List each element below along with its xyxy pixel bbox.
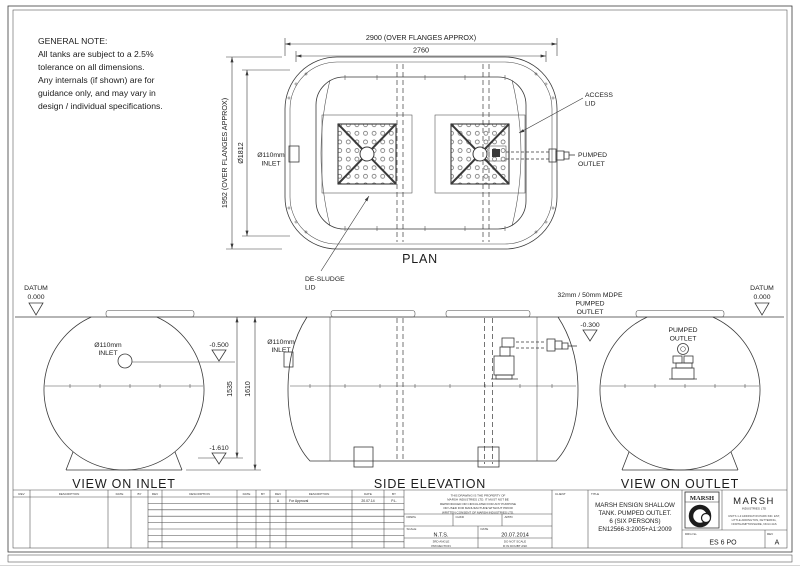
desludge-lid-label: DE-SLUDGE [305,276,345,283]
general-note-line: All tanks are subject to a 2.5% [38,49,154,59]
side-desludge-pipe [397,318,403,460]
inlet-view-caption: VIEW ON INLET [72,477,175,491]
level-triangle [212,350,226,361]
side-lid-right [446,311,530,318]
date-value: 20.07.2014 [501,533,529,539]
general-note-line: Any internals (if shown) are for [38,75,155,85]
plan-inlet-stub [289,146,299,162]
access-lid-leader [519,98,583,133]
access-lid-label: LID [585,101,596,108]
inlet-pipe [118,354,132,368]
svg-text:2900 (OVER FLANGES APPROX): 2900 (OVER FLANGES APPROX) [366,33,476,42]
mdpe-outlet-label: OUTLET [577,309,604,316]
rev-header: REV [152,492,158,496]
svg-text:1952 (OVER FLANGES APPROX): 1952 (OVER FLANGES APPROX) [220,98,229,208]
date-header: DATE [243,492,251,496]
rev-value: A [775,540,780,547]
plan-inlet-label: Ø110mm [257,152,285,159]
company-address: NORTHAMPTONSHIRE, NN14 4AS [731,522,776,526]
level-triangle [212,453,226,464]
date-header: DATE [116,492,124,496]
title-block: REV DESCRIPTION DATE BY REV DESCRIPTION … [13,490,787,548]
plan-pumped-outlet-label: PUMPED [578,152,607,159]
outlet-view-caption: VIEW ON OUTLET [621,477,739,491]
drwg-cell-label: DRWG [407,515,417,519]
svg-text:2760: 2760 [413,46,429,55]
plan-flange-bolts [288,73,554,233]
logo-wordmark: MARSH [690,495,714,502]
date-header: DATE [364,492,372,496]
rev-label: REV [767,532,773,536]
outlet-view-pump [669,356,697,379]
mdpe-outlet-label: 32mm / 50mm MDPE [558,292,623,299]
side-end-seams [330,317,537,461]
side-elevation: Ø110mm INLET 32mm / 50mm MDPE PUMPED OUT… [267,292,623,491]
dim-1610: 1610 [245,381,252,397]
desludge-lid-leader [321,196,369,271]
base-level: -1.610 [209,445,228,452]
scale-value: N.T.S. [434,533,449,539]
scale-label: SCALE [407,527,417,531]
plan-tank-outer-flange [285,57,557,249]
revision-by: P.L. [391,499,397,503]
side-pump-riser [485,318,493,464]
datum-triangle [29,303,43,315]
drawing-title: MARSH ENSIGN SHALLOW TANK. PUMPED OUTLET… [595,502,675,533]
by-header: BY [137,492,141,496]
plan-view: 2900 (OVER FLANGES APPROX) 2760 1952 (OV… [220,33,613,292]
revision-row: A For Approval 20.07.14 P.L. [277,499,397,503]
datum-left: DATUM 0.000 [24,285,48,315]
svg-text:DATUM: DATUM [24,285,48,292]
side-sump-left [354,447,373,467]
appd-cell-label: APPD [505,515,514,519]
engineering-drawing: GENERAL NOTE: All tanks are subject to a… [0,0,800,565]
company-name: MARSH [733,496,775,507]
side-lid-left [331,311,415,318]
svg-text:Ø1812: Ø1812 [236,142,245,164]
access-lid-label: ACCESS [585,92,613,99]
level-triangle [583,330,597,341]
date-label: DATE [481,527,489,531]
datum-right: DATUM 0.000 [750,285,774,315]
client-label: CLIENT [555,492,566,496]
marsh-logo: MARSH [685,492,719,528]
title-label: TITLE [591,492,599,496]
description-header: DESCRIPTION [59,492,80,496]
description-header: DESCRIPTION [309,492,330,496]
chkd-cell-label: CHKD [456,515,465,519]
drawing-sheet: GENERAL NOTE: All tanks are subject to a… [0,0,800,565]
revision-date: 20.07.14 [361,499,374,503]
svg-text:0.000: 0.000 [753,294,770,301]
side-sump-right [478,447,499,467]
drg-no-value: ES 6 PO [709,540,737,547]
plan-pumped-outlet-label: OUTLET [578,161,605,168]
general-note-line: tolerance on all dimensions. [38,62,145,72]
disclaimer: THIS DRAWING IS THE PROPERTY OF MARSH IN… [440,494,516,515]
datum-triangle [755,303,769,315]
side-elevation-caption: SIDE ELEVATION [374,477,486,491]
svg-text:TANK. PUMPED OUTLET.: TANK. PUMPED OUTLET. [598,510,671,517]
general-note-line: guidance only, and may vary in [38,88,156,98]
inlet-view-tank [44,317,204,470]
inlet-invert-level: -0.500 [209,342,228,349]
svg-text:MARSH ENSIGN SHALLOW: MARSH ENSIGN SHALLOW [595,502,675,509]
projection-note: PROJECTION [431,544,450,548]
svg-text:DATUM: DATUM [750,285,774,292]
view-on-inlet: Ø110mm INLET -0.500 1535 1610 -1.610 VIE… [44,311,261,492]
dim-1535: 1535 [227,381,234,397]
outlet-view-base [622,452,738,470]
inlet-view-inlet-label: INLET [98,350,117,357]
side-tank-outline [288,317,578,461]
inlet-view-base [66,452,182,470]
drg-no-label: DRG No. [685,532,697,536]
company-block: MARSH INDUSTRIES LTD UNITS 1-3 ADDINGTON… [728,496,780,526]
description-header: DESCRIPTION [189,492,210,496]
svg-text:6 (SIX PERSONS): 6 (SIX PERSONS) [609,518,660,525]
view-on-outlet: PUMPED OUTLET VIEW ON OUTLET [600,311,760,492]
general-note: GENERAL NOTE: All tanks are subject to a… [38,36,163,111]
company-subtitle: INDUSTRIES LTD [742,507,767,511]
inlet-view-lid [106,311,194,318]
outlet-view-pumped-label: PUMPED [668,327,697,334]
plan-desludge-lid [322,115,412,193]
svg-text:EN12566-3:2005+A1:2009: EN12566-3:2005+A1:2009 [598,526,672,533]
plan-access-lid [435,115,525,193]
plan-inlet-label: INLET [261,161,280,168]
mdpe-outlet-label: PUMPED [575,301,604,308]
inlet-view-inlet-label: Ø110mm [94,342,122,349]
outlet-pipe [678,344,689,355]
general-note-title: GENERAL NOTE: [38,36,107,46]
rev-header: REV [275,492,281,496]
plan-caption: PLAN [402,252,438,266]
general-note-line: design / individual specifications. [38,101,163,111]
do-not-scale-note: IF IN DOUBT ASK [503,544,527,548]
plan-tank-inner-flange [290,62,552,244]
revision-rev: A [277,499,280,503]
rev-header: REV [18,492,24,496]
by-header: BY [261,492,265,496]
outlet-view-lid [636,311,724,318]
outlet-view-pumped-label: OUTLET [670,336,697,343]
side-inlet-label: Ø110mm [267,339,295,346]
outlet-invert-level: -0.300 [580,322,599,329]
svg-text:WRITTEN CONSENT OF MARSH INDUS: WRITTEN CONSENT OF MARSH INDUSTRIES LTD. [442,510,514,514]
svg-text:0.000: 0.000 [27,294,44,301]
revision-description: For Approval [289,499,308,503]
desludge-lid-label: LID [305,285,316,292]
by-header: BY [392,492,396,496]
side-inlet-label: INLET [271,347,290,354]
plan-dim-body-width: 2760 [296,46,546,63]
side-pump [491,338,546,379]
